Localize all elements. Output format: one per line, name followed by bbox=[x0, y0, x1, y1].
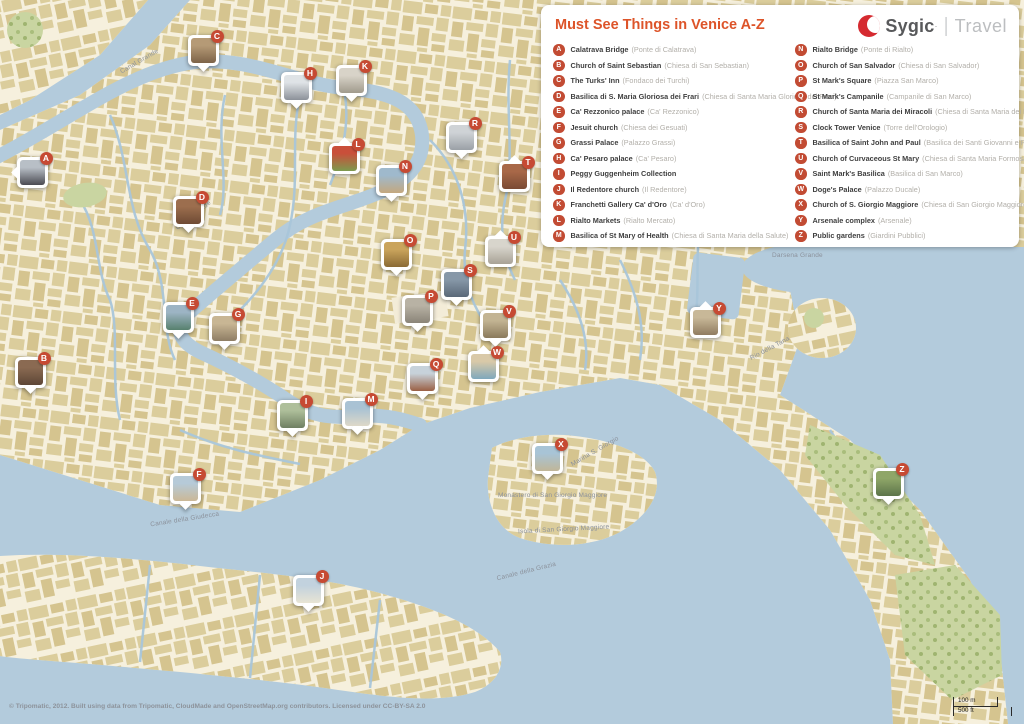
map-marker-Z[interactable]: Z bbox=[873, 468, 904, 499]
legend-letter-badge-E: E bbox=[553, 106, 565, 118]
marker-letter-badge-T: T bbox=[522, 156, 535, 169]
legend-column-right: NRialto Bridge(Ponte di Rialto)OChurch o… bbox=[795, 42, 1024, 244]
legend-place-name: Church of San Salvador bbox=[813, 61, 896, 70]
legend-place-name: Peggy Guggenheim Collection bbox=[571, 169, 677, 178]
legend-place-name: Franchetti Gallery Ca' d'Oro bbox=[571, 200, 667, 209]
legend-letter-badge-H: H bbox=[553, 153, 565, 165]
marker-photo-P bbox=[405, 298, 430, 323]
marker-photo-X bbox=[535, 446, 560, 471]
legend-place-name: Church of Saint Sebastian bbox=[571, 61, 662, 70]
legend-item-Y: YArsenale complex(Arsenale) bbox=[795, 213, 1024, 229]
legend-place-alt-name: (Palazzo Ducale) bbox=[865, 185, 921, 194]
legend-item-Z: ZPublic gardens(Giardini Pubblici) bbox=[795, 228, 1024, 244]
legend-letter-badge-C: C bbox=[553, 75, 565, 87]
marker-photo-W bbox=[471, 354, 496, 379]
marker-letter-badge-M: M bbox=[365, 393, 378, 406]
marker-letter-badge-K: K bbox=[359, 60, 372, 73]
marker-photo-G bbox=[212, 316, 237, 341]
marker-photo-M bbox=[345, 401, 370, 426]
marker-letter-badge-N: N bbox=[399, 160, 412, 173]
legend-place-name: Church of S. Giorgio Maggiore bbox=[813, 200, 919, 209]
marker-photo-A bbox=[20, 160, 45, 185]
legend-title: Must See Things in Venice A-Z bbox=[555, 17, 765, 33]
marker-photo-I bbox=[280, 403, 305, 428]
map-marker-X[interactable]: X bbox=[532, 443, 563, 474]
legend-item-V: VSaint Mark's Basilica(Basilica di San M… bbox=[795, 166, 1024, 182]
marker-photo-U bbox=[488, 239, 513, 264]
marker-photo-H bbox=[284, 75, 309, 100]
legend-place-alt-name: (Ca' d'Oro) bbox=[670, 200, 705, 209]
marker-letter-badge-P: P bbox=[425, 290, 438, 303]
legend-letter-badge-A: A bbox=[553, 44, 565, 56]
scale-metric: 100 m bbox=[954, 697, 998, 707]
legend-letter-badge-I: I bbox=[553, 168, 565, 180]
legend-letter-badge-X: X bbox=[795, 199, 807, 211]
marker-photo-B bbox=[18, 360, 43, 385]
legend-place-name: Clock Tower Venice bbox=[813, 123, 881, 132]
legend-place-alt-name: (Basilica dei Santi Giovanni e Paolo) bbox=[924, 138, 1024, 147]
legend-item-R: RChurch of Santa Maria dei Miracoli(Chie… bbox=[795, 104, 1024, 120]
marker-letter-badge-I: I bbox=[300, 395, 313, 408]
sygic-crescent-icon bbox=[858, 15, 880, 37]
marker-letter-badge-X: X bbox=[555, 438, 568, 451]
map-marker-F[interactable]: F bbox=[170, 473, 201, 504]
map-label: Darsena Grande bbox=[772, 252, 823, 259]
legend-place-name: Basilica di S. Maria Gloriosa dei Frari bbox=[571, 92, 700, 101]
map-marker-J[interactable]: J bbox=[293, 575, 324, 606]
legend-item-W: WDoge's Palace(Palazzo Ducale) bbox=[795, 182, 1024, 198]
map-marker-K[interactable]: K bbox=[336, 65, 367, 96]
legend-place-name: Ca' Pesaro palace bbox=[571, 154, 633, 163]
legend-place-name: The Turks' Inn bbox=[571, 76, 620, 85]
map-marker-P[interactable]: P bbox=[402, 295, 433, 326]
legend-item-Q: QSt Mark's Campanile(Campanile di San Ma… bbox=[795, 89, 1024, 105]
legend-place-name: Church of Curvaceous St Mary bbox=[813, 154, 920, 163]
legend-place-alt-name: (Basilica di San Marco) bbox=[888, 169, 963, 178]
legend-place-name: Doge's Palace bbox=[813, 185, 862, 194]
legend-letter-badge-P: P bbox=[795, 75, 807, 87]
marker-letter-badge-W: W bbox=[491, 346, 504, 359]
map-marker-H[interactable]: H bbox=[281, 72, 312, 103]
marker-letter-badge-H: H bbox=[304, 67, 317, 80]
darsena-grande-water bbox=[742, 242, 898, 294]
legend-place-alt-name: (Ca' Pesaro) bbox=[636, 154, 677, 163]
legend-panel: Must See Things in Venice A-Z ACalatrava… bbox=[541, 5, 1019, 247]
sygic-travel-logo: Sygic · | Travel bbox=[858, 13, 1007, 39]
marker-letter-badge-R: R bbox=[469, 117, 482, 130]
marker-letter-badge-A: A bbox=[40, 152, 53, 165]
legend-letter-badge-Q: Q bbox=[795, 91, 807, 103]
map-marker-Q[interactable]: Q bbox=[407, 363, 438, 394]
legend-item-N: NRialto Bridge(Ponte di Rialto) bbox=[795, 42, 1024, 58]
san-pietro-islet bbox=[788, 298, 856, 358]
marker-photo-K bbox=[339, 68, 364, 93]
marker-letter-badge-J: J bbox=[316, 570, 329, 583]
map-marker-W[interactable]: W bbox=[468, 351, 499, 382]
legend-letter-badge-J: J bbox=[553, 184, 565, 196]
map-marker-N[interactable]: N bbox=[376, 165, 407, 196]
legend-place-alt-name: (Ca' Rezzonico) bbox=[647, 107, 699, 116]
marker-letter-badge-L: L bbox=[352, 138, 365, 151]
legend-place-name: Basilica of Saint John and Paul bbox=[813, 138, 921, 147]
scale-bar: 100 m 500 ft bbox=[953, 697, 1012, 716]
map-marker-V[interactable]: V bbox=[480, 310, 511, 341]
legend-letter-badge-D: D bbox=[553, 91, 565, 103]
legend-letter-badge-T: T bbox=[795, 137, 807, 149]
marker-letter-badge-B: B bbox=[38, 352, 51, 365]
legend-letter-badge-Z: Z bbox=[795, 230, 807, 242]
legend-place-alt-name: (Torre dell'Orologio) bbox=[884, 123, 948, 132]
map-marker-A[interactable]: A bbox=[17, 157, 48, 188]
legend-place-alt-name: (Campanile di San Marco) bbox=[887, 92, 972, 101]
legend-place-alt-name: (Fondaco dei Turchi) bbox=[623, 76, 690, 85]
logo-word-travel: Travel bbox=[955, 16, 1007, 37]
marker-photo-R bbox=[449, 125, 474, 150]
legend-place-name: St Mark's Square bbox=[813, 76, 872, 85]
legend-place-name: Ca' Rezzonico palace bbox=[571, 107, 645, 116]
legend-letter-badge-G: G bbox=[553, 137, 565, 149]
marker-photo-C bbox=[191, 38, 216, 63]
marker-photo-L bbox=[332, 146, 357, 171]
legend-letter-badge-W: W bbox=[795, 184, 807, 196]
legend-letter-badge-V: V bbox=[795, 168, 807, 180]
map-marker-I[interactable]: I bbox=[277, 400, 308, 431]
legend-place-alt-name: (Rialto Mercato) bbox=[623, 216, 675, 225]
legend-item-U: UChurch of Curvaceous St Mary(Chiesa di … bbox=[795, 151, 1024, 167]
scale-imperial: 500 ft bbox=[954, 707, 1012, 716]
marker-photo-O bbox=[384, 242, 409, 267]
legend-letter-badge-F: F bbox=[553, 122, 565, 134]
marker-letter-badge-F: F bbox=[193, 468, 206, 481]
marker-photo-Q bbox=[410, 366, 435, 391]
map-marker-C[interactable]: C bbox=[188, 35, 219, 66]
marker-letter-badge-O: O bbox=[404, 234, 417, 247]
legend-place-alt-name: (Giardini Pubblici) bbox=[868, 231, 926, 240]
legend-letter-badge-R: R bbox=[795, 106, 807, 118]
legend-place-name: Rialto Markets bbox=[571, 216, 621, 225]
legend-place-alt-name: (Palazzo Grassi) bbox=[621, 138, 675, 147]
legend-letter-badge-L: L bbox=[553, 215, 565, 227]
map-marker-G[interactable]: G bbox=[209, 313, 240, 344]
legend-place-alt-name: (Chiesa di San Giorgio Maggiore) bbox=[921, 200, 1024, 209]
legend-place-name: Grassi Palace bbox=[571, 138, 619, 147]
legend-place-alt-name: (Ponte di Rialto) bbox=[861, 45, 913, 54]
marker-photo-N bbox=[379, 168, 404, 193]
marker-letter-badge-S: S bbox=[464, 264, 477, 277]
logo-divider: | bbox=[943, 15, 948, 38]
map-label: Monastero di San Giorgio Maggiore bbox=[498, 492, 607, 499]
map-marker-E[interactable]: E bbox=[163, 302, 194, 333]
marker-photo-T bbox=[502, 164, 527, 189]
legend-letter-badge-N: N bbox=[795, 44, 807, 56]
legend-place-alt-name: (Ponte di Calatrava) bbox=[632, 45, 697, 54]
legend-letter-badge-M: M bbox=[553, 230, 565, 242]
legend-place-alt-name: (Chiesa dei Gesuati) bbox=[621, 123, 688, 132]
legend-place-alt-name: (Il Redentore) bbox=[642, 185, 687, 194]
marker-photo-Z bbox=[876, 471, 901, 496]
marker-photo-S bbox=[444, 272, 469, 297]
marker-photo-Y bbox=[693, 310, 718, 335]
legend-place-alt-name: (Chiesa di Santa Maria della Salute) bbox=[672, 231, 789, 240]
legend-place-name: Rialto Bridge bbox=[813, 45, 858, 54]
legend-place-alt-name: (Chiesa di Santa Maria Formosa) bbox=[922, 154, 1024, 163]
map-marker-M[interactable]: M bbox=[342, 398, 373, 429]
marker-letter-badge-U: U bbox=[508, 231, 521, 244]
map-marker-S[interactable]: S bbox=[441, 269, 472, 300]
map-marker-D[interactable]: D bbox=[173, 196, 204, 227]
legend-letter-badge-K: K bbox=[553, 199, 565, 211]
legend-place-name: Church of Santa Maria dei Miracoli bbox=[813, 107, 933, 116]
marker-letter-badge-G: G bbox=[232, 308, 245, 321]
marker-photo-V bbox=[483, 313, 508, 338]
marker-photo-D bbox=[176, 199, 201, 224]
marker-photo-E bbox=[166, 305, 191, 330]
legend-place-name: Basilica of St Mary of Health bbox=[571, 231, 669, 240]
legend-place-name: Saint Mark's Basilica bbox=[813, 169, 885, 178]
legend-letter-badge-S: S bbox=[795, 122, 807, 134]
marker-letter-badge-Y: Y bbox=[713, 302, 726, 315]
map-marker-B[interactable]: B bbox=[15, 357, 46, 388]
marker-letter-badge-Q: Q bbox=[430, 358, 443, 371]
marker-photo-F bbox=[173, 476, 198, 501]
legend-place-name: Jesuit church bbox=[571, 123, 618, 132]
legend-place-name: Public gardens bbox=[813, 231, 865, 240]
map-marker-U[interactable]: U bbox=[485, 236, 516, 267]
legend-letter-badge-Y: Y bbox=[795, 215, 807, 227]
legend-letter-badge-O: O bbox=[795, 60, 807, 72]
legend-letter-badge-B: B bbox=[553, 60, 565, 72]
legend-place-alt-name: (Chiesa di Santa Maria dei Miracoli) bbox=[935, 107, 1024, 116]
logo-word-sygic: Sygic bbox=[885, 16, 934, 37]
legend-item-S: SClock Tower Venice(Torre dell'Orologio) bbox=[795, 120, 1024, 136]
marker-letter-badge-Z: Z bbox=[896, 463, 909, 476]
map-marker-T[interactable]: T bbox=[499, 161, 530, 192]
legend-place-name: Calatrava Bridge bbox=[571, 45, 629, 54]
legend-item-P: PSt Mark's Square(Piazza San Marco) bbox=[795, 73, 1024, 89]
logo-tm-dot: · bbox=[934, 19, 937, 33]
marker-letter-badge-E: E bbox=[186, 297, 199, 310]
legend-item-T: TBasilica of Saint John and Paul(Basilic… bbox=[795, 135, 1024, 151]
legend-item-O: OChurch of San Salvador(Chiesa di San Sa… bbox=[795, 58, 1024, 74]
marker-letter-badge-V: V bbox=[503, 305, 516, 318]
marker-letter-badge-D: D bbox=[196, 191, 209, 204]
marker-letter-badge-C: C bbox=[211, 30, 224, 43]
legend-place-alt-name: (Chiesa di San Sebastian) bbox=[664, 61, 749, 70]
marker-photo-J bbox=[296, 578, 321, 603]
venice-tourist-map: Must See Things in Venice A-Z ACalatrava… bbox=[0, 0, 1024, 724]
legend-place-alt-name: (Chiesa di San Salvador) bbox=[898, 61, 979, 70]
map-marker-L[interactable]: L bbox=[329, 143, 360, 174]
legend-place-alt-name: (Arsenale) bbox=[878, 216, 912, 225]
legend-place-alt-name: (Piazza San Marco) bbox=[874, 76, 938, 85]
legend-place-name: St Mark's Campanile bbox=[813, 92, 884, 101]
map-marker-O[interactable]: O bbox=[381, 239, 412, 270]
map-marker-R[interactable]: R bbox=[446, 122, 477, 153]
legend-place-name: Arsenale complex bbox=[813, 216, 875, 225]
map-attribution: © Tripomatic, 2012. Built using data fro… bbox=[9, 703, 425, 710]
legend-item-X: XChurch of S. Giorgio Maggiore(Chiesa di… bbox=[795, 197, 1024, 213]
map-marker-Y[interactable]: Y bbox=[690, 307, 721, 338]
legend-letter-badge-U: U bbox=[795, 153, 807, 165]
legend-place-name: Il Redentore church bbox=[571, 185, 640, 194]
